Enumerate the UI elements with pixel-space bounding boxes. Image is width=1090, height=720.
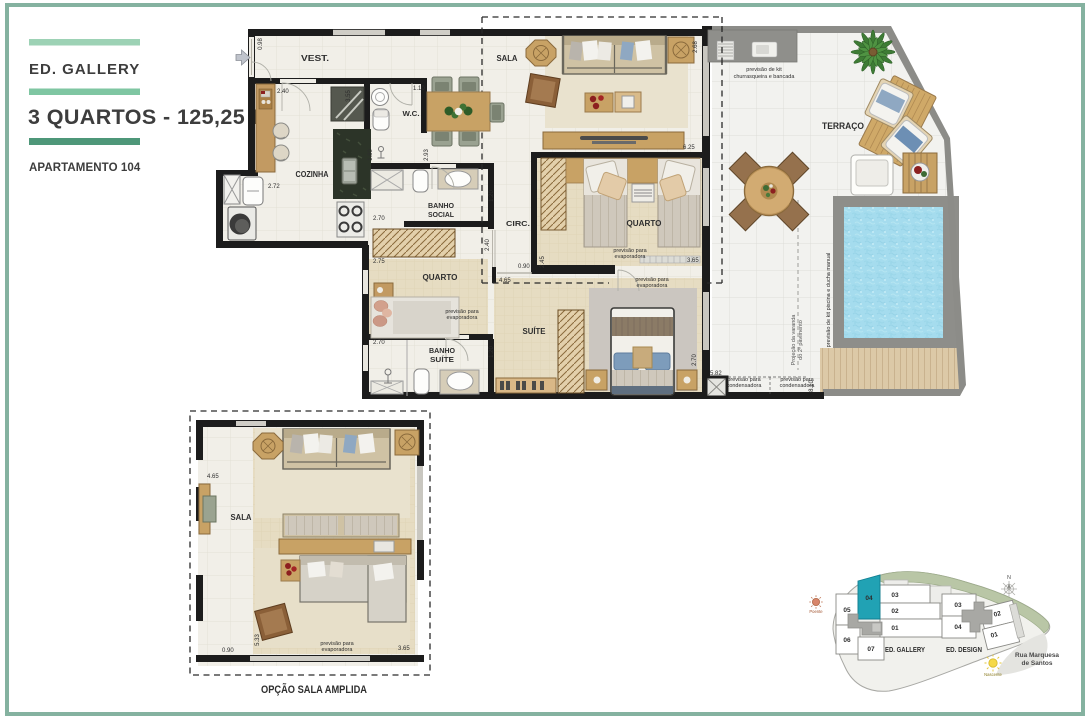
svg-text:previsão de kit piscina e duch: previsão de kit piscina e ducha manual bbox=[826, 253, 832, 348]
svg-text:evaporadora: evaporadora bbox=[447, 315, 479, 321]
svg-text:SALA: SALA bbox=[497, 54, 518, 63]
svg-text:ED. GALLERY: ED. GALLERY bbox=[885, 647, 925, 654]
svg-text:03: 03 bbox=[954, 602, 962, 609]
svg-text:SALA: SALA bbox=[231, 513, 252, 522]
svg-text:SUÍTE: SUÍTE bbox=[430, 355, 454, 364]
svg-text:2.70: 2.70 bbox=[373, 340, 385, 346]
svg-text:3.65: 3.65 bbox=[687, 258, 699, 264]
svg-text:COZINHA: COZINHA bbox=[296, 170, 329, 179]
svg-text:01: 01 bbox=[891, 625, 899, 632]
svg-text:Nascente: Nascente bbox=[984, 672, 1002, 677]
svg-text:3.65: 3.65 bbox=[398, 646, 410, 652]
svg-text:4.65: 4.65 bbox=[207, 474, 219, 480]
svg-text:VEST.: VEST. bbox=[301, 54, 329, 63]
svg-text:06: 06 bbox=[843, 637, 851, 644]
svg-text:OPÇÃO SALA AMPLIDA: OPÇÃO SALA AMPLIDA bbox=[261, 683, 367, 696]
svg-text:do 2º pavimento: do 2º pavimento bbox=[797, 320, 804, 360]
svg-text:2.75: 2.75 bbox=[373, 259, 385, 265]
svg-text:previsão de kit: previsão de kit bbox=[746, 67, 782, 73]
svg-text:SUÍTE: SUÍTE bbox=[523, 327, 547, 336]
svg-text:4.65: 4.65 bbox=[499, 278, 511, 284]
svg-text:2.93: 2.93 bbox=[424, 149, 430, 161]
svg-text:04: 04 bbox=[865, 595, 873, 602]
svg-text:1.20: 1.20 bbox=[489, 346, 495, 358]
svg-text:2.70: 2.70 bbox=[692, 354, 698, 366]
svg-text:2.70: 2.70 bbox=[373, 216, 385, 222]
svg-text:1.20: 1.20 bbox=[489, 190, 495, 202]
svg-text:1.80: 1.80 bbox=[368, 149, 374, 161]
svg-text:SOCIAL: SOCIAL bbox=[428, 212, 455, 219]
svg-text:APARTAMENTO 104: APARTAMENTO 104 bbox=[29, 162, 141, 174]
svg-text:0.90: 0.90 bbox=[518, 264, 530, 270]
svg-text:04: 04 bbox=[954, 624, 962, 631]
svg-text:evaporadora: evaporadora bbox=[637, 283, 669, 289]
svg-text:CIRC.: CIRC. bbox=[506, 219, 530, 228]
svg-text:churrasqueira e bancada: churrasqueira e bancada bbox=[734, 74, 796, 80]
svg-text:0.90: 0.90 bbox=[222, 648, 234, 654]
svg-text:2.45: 2.45 bbox=[540, 256, 546, 268]
svg-text:03: 03 bbox=[891, 592, 899, 599]
svg-text:evaporadora: evaporadora bbox=[322, 647, 354, 653]
svg-text:07: 07 bbox=[867, 646, 875, 653]
svg-text:Poente: Poente bbox=[809, 609, 823, 614]
svg-text:0.98: 0.98 bbox=[258, 38, 264, 50]
svg-text:8.10: 8.10 bbox=[809, 380, 815, 392]
svg-text:6.25: 6.25 bbox=[683, 145, 695, 151]
svg-text:de Santos: de Santos bbox=[1022, 660, 1053, 667]
svg-text:05: 05 bbox=[843, 607, 851, 614]
svg-text:ED. GALLERY: ED. GALLERY bbox=[29, 61, 140, 78]
svg-text:BANHO: BANHO bbox=[429, 348, 456, 355]
svg-text:ED. DESIGN: ED. DESIGN bbox=[946, 647, 982, 654]
svg-text:3 QUARTOS - 125,25 M²: 3 QUARTOS - 125,25 M² bbox=[28, 105, 277, 129]
svg-text:1.10: 1.10 bbox=[413, 86, 425, 92]
svg-text:evaporadora: evaporadora bbox=[615, 254, 647, 260]
svg-text:TERRAÇO: TERRAÇO bbox=[822, 121, 864, 131]
svg-text:QUARTO: QUARTO bbox=[627, 219, 662, 228]
svg-text:2.72: 2.72 bbox=[268, 184, 280, 190]
svg-text:condensadora: condensadora bbox=[727, 383, 763, 389]
svg-text:N: N bbox=[1007, 575, 1011, 581]
svg-text:5.33: 5.33 bbox=[255, 634, 261, 646]
svg-text:W.C.: W.C. bbox=[403, 109, 420, 118]
svg-text:2.40: 2.40 bbox=[485, 239, 491, 251]
svg-text:02: 02 bbox=[891, 608, 899, 615]
svg-text:5.82: 5.82 bbox=[710, 371, 722, 377]
svg-text:2.40: 2.40 bbox=[277, 89, 289, 95]
svg-text:2.68: 2.68 bbox=[693, 41, 699, 53]
svg-text:Projeção da varanda: Projeção da varanda bbox=[791, 314, 797, 366]
svg-text:BANHO: BANHO bbox=[428, 203, 455, 210]
svg-text:3.55: 3.55 bbox=[346, 90, 352, 102]
svg-text:QUARTO: QUARTO bbox=[423, 273, 458, 282]
svg-text:Rua Marquesa: Rua Marquesa bbox=[1015, 652, 1059, 659]
